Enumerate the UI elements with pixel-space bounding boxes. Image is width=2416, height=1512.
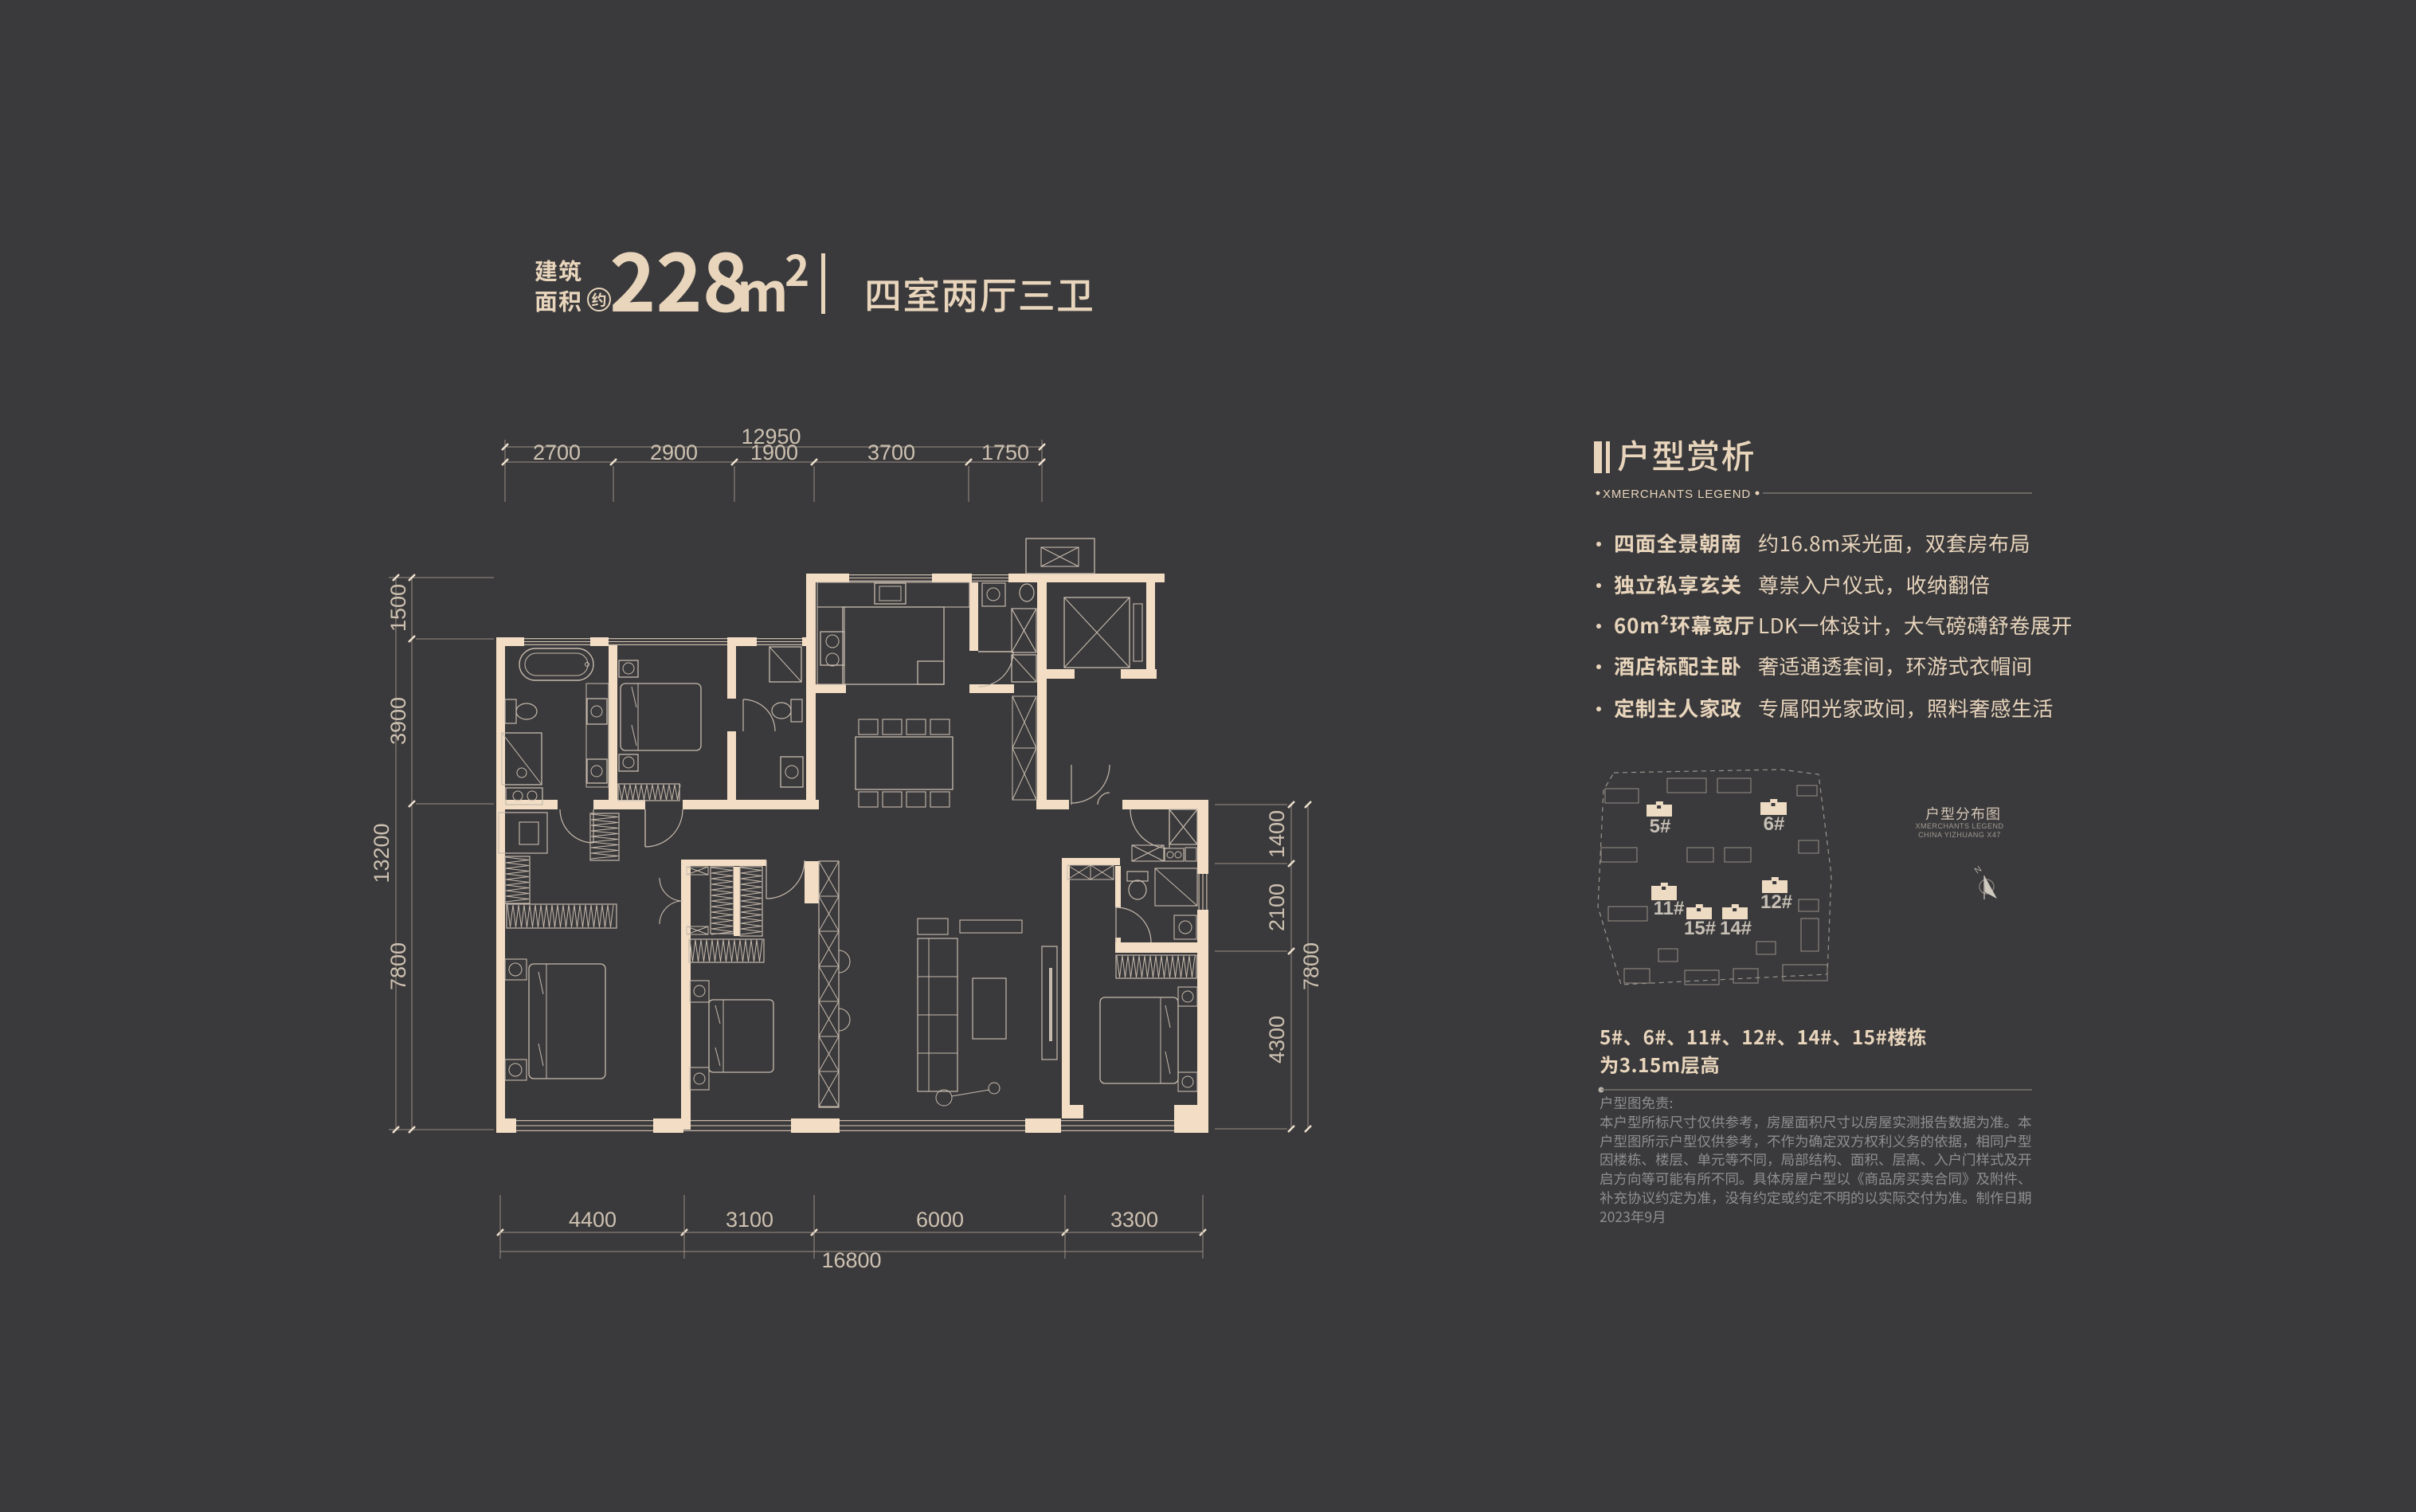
svg-text:7800: 7800 <box>386 942 410 990</box>
svg-text:1400: 1400 <box>1265 810 1289 858</box>
svg-text:1500: 1500 <box>386 584 410 632</box>
svg-text:CHINA YIZHUANG X47: CHINA YIZHUANG X47 <box>1918 831 2001 839</box>
svg-text:15#: 15# <box>1684 918 1716 939</box>
svg-text:4300: 4300 <box>1265 1016 1289 1063</box>
svg-text:3100: 3100 <box>726 1208 773 1232</box>
svg-text:11#: 11# <box>1654 898 1685 919</box>
svg-text:XMERCHANTS LEGEND: XMERCHANTS LEGEND <box>1915 822 2003 830</box>
svg-text:2700: 2700 <box>533 441 581 464</box>
svg-text:6#: 6# <box>1764 813 1785 835</box>
svg-text:4400: 4400 <box>569 1208 617 1232</box>
svg-text:7800: 7800 <box>1299 942 1323 990</box>
svg-text:1750: 1750 <box>981 441 1029 464</box>
svg-text:2900: 2900 <box>650 441 698 464</box>
svg-text:XMERCHANTS LEGEND: XMERCHANTS LEGEND <box>1603 488 1751 501</box>
svg-text:3700: 3700 <box>867 441 915 464</box>
svg-text:2100: 2100 <box>1265 883 1289 931</box>
svg-text:5#: 5# <box>1650 816 1671 837</box>
svg-text:14#: 14# <box>1720 918 1752 939</box>
svg-text:13200: 13200 <box>370 823 394 883</box>
svg-text:16800: 16800 <box>821 1248 881 1272</box>
svg-text:3300: 3300 <box>1110 1208 1158 1232</box>
svg-text:3900: 3900 <box>386 697 410 745</box>
svg-text:12#: 12# <box>1760 891 1792 913</box>
svg-text:1900: 1900 <box>750 441 798 464</box>
svg-text:6000: 6000 <box>916 1208 964 1232</box>
